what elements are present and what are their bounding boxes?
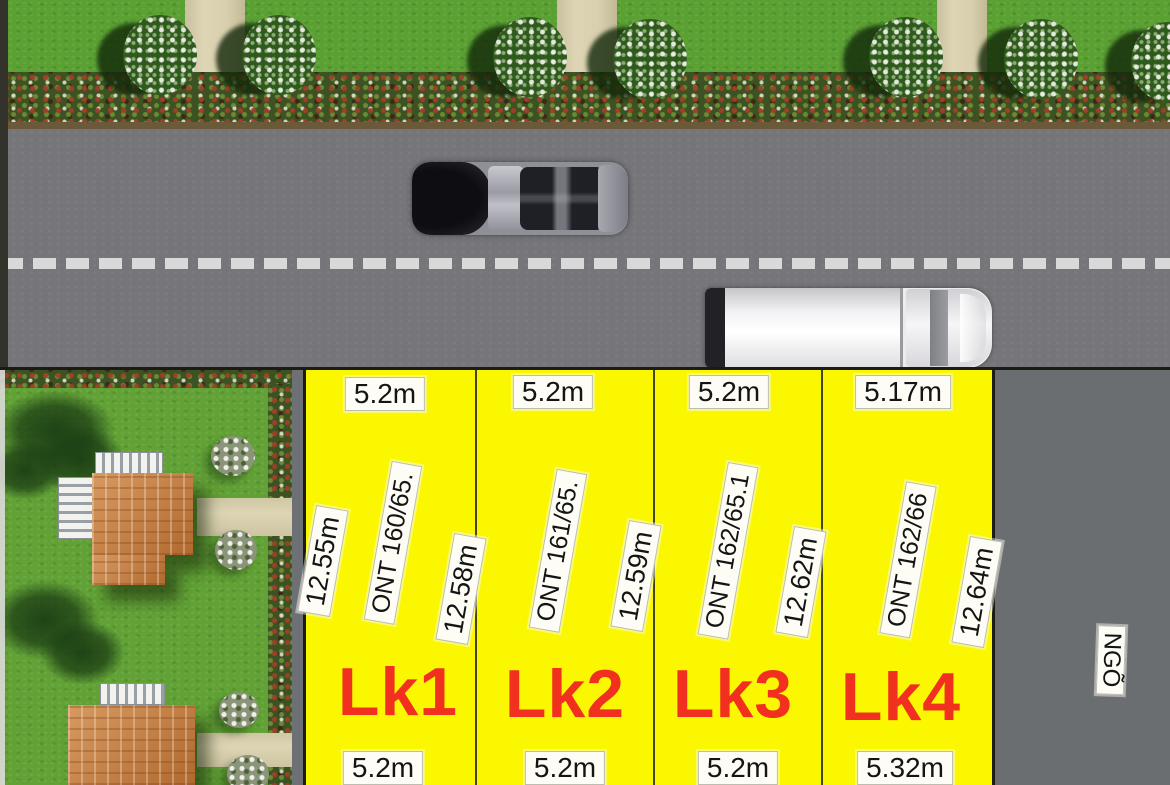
tree-icon bbox=[843, 15, 943, 105]
truck-windshield bbox=[930, 290, 948, 366]
truck-front bbox=[960, 294, 986, 362]
garden-hedge-right bbox=[268, 384, 294, 785]
car-trunk bbox=[598, 165, 628, 232]
house-roof bbox=[68, 705, 195, 785]
plot-boundary bbox=[821, 370, 823, 785]
garden-left-border bbox=[0, 370, 5, 785]
pergola bbox=[58, 477, 95, 539]
shrub-icon bbox=[227, 755, 269, 785]
plot-lk3-frontage-label: 5.2m bbox=[689, 375, 769, 409]
car-hood bbox=[412, 162, 492, 235]
plot-lk2-frontage-label: 5.2m bbox=[513, 375, 593, 409]
plot-lk2-rear-width-label: 5.2m bbox=[525, 751, 605, 785]
garden bbox=[0, 370, 303, 785]
bush-icon bbox=[40, 620, 125, 685]
house-roof-wing bbox=[92, 555, 165, 585]
land-subdivision-plan: NGÕ 5.2m 5.2m 5.2m 5.17m ONT 160/65. ONT… bbox=[0, 0, 1170, 785]
garden-hedge-top bbox=[0, 370, 292, 388]
plot-lk4-name: Lk4 bbox=[841, 658, 961, 736]
bush-icon bbox=[0, 440, 65, 500]
garden-alley-strip bbox=[292, 370, 303, 785]
pergola bbox=[100, 683, 165, 705]
tree-icon bbox=[978, 17, 1078, 107]
plot-lk2-name: Lk2 bbox=[505, 655, 625, 733]
road-center-line bbox=[0, 258, 1170, 269]
tree-icon bbox=[216, 13, 316, 103]
car-top-view bbox=[412, 162, 628, 235]
plot-lk3-name: Lk3 bbox=[673, 655, 793, 733]
road-scene bbox=[0, 0, 1170, 367]
plot-lk1-name: Lk1 bbox=[338, 653, 458, 731]
shrub-icon bbox=[211, 436, 255, 476]
tree-icon bbox=[97, 13, 197, 103]
shrub-icon bbox=[219, 692, 259, 728]
truck-top-view bbox=[705, 288, 992, 368]
car-roof-glass bbox=[520, 167, 604, 230]
alley-label: NGÕ bbox=[1096, 625, 1126, 695]
plot-lk4-frontage-label: 5.17m bbox=[855, 375, 951, 409]
alley-strip: NGÕ bbox=[995, 370, 1170, 785]
plot-lk3-rear-width-label: 5.2m bbox=[698, 751, 778, 785]
shrub-icon bbox=[215, 530, 257, 570]
garden-path bbox=[197, 498, 292, 536]
truck-cargo-box bbox=[725, 288, 903, 368]
car-windshield-band bbox=[488, 166, 524, 231]
plot-boundary bbox=[653, 370, 655, 785]
tree-icon bbox=[587, 17, 687, 107]
tree-icon bbox=[467, 15, 567, 105]
tree-icon bbox=[1105, 20, 1170, 110]
truck-rear-edge bbox=[705, 288, 725, 368]
plot-lk1-frontage-label: 5.2m bbox=[345, 377, 425, 411]
pergola bbox=[95, 452, 163, 474]
photo-left-border bbox=[0, 0, 8, 367]
plot-lk1-rear-width-label: 5.2m bbox=[343, 751, 423, 785]
plot-lk4-rear-width-label: 5.32m bbox=[857, 751, 953, 785]
hedge-curb bbox=[0, 122, 1170, 129]
house-roof bbox=[92, 473, 193, 555]
road bbox=[0, 129, 1170, 367]
